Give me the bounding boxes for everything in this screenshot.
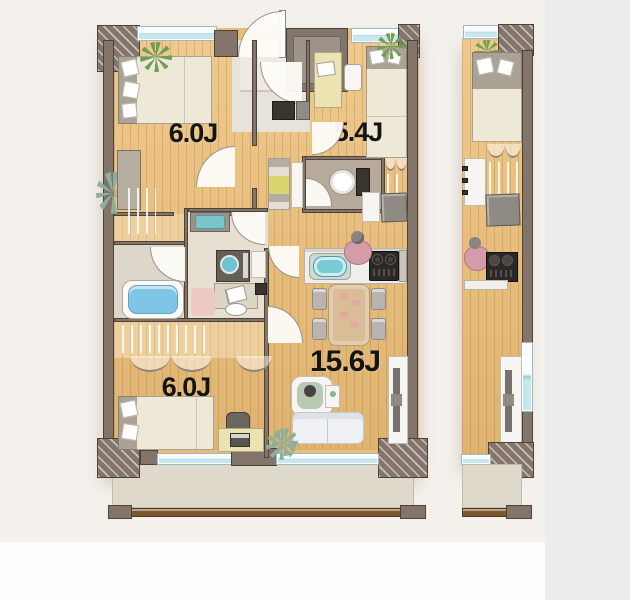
stove-burner-2 [386,255,395,264]
closet-hangers-upper [128,188,156,234]
bed-bedroom3 [137,396,214,450]
outer-wall-left [103,40,114,445]
closet-hangers-bedroom3 [122,325,210,353]
adjacent-tv-stand [503,394,514,406]
entrance-cabinet [296,101,310,120]
kitchen-sink [313,256,347,277]
dining-chair-1 [312,288,327,310]
dining-chair-4 [371,318,386,340]
adjacent-closet-hangers [489,162,519,196]
bed3-pillow-1 [120,400,139,419]
entrance-door-swing [238,11,282,57]
wall-bedroom1-hall [252,40,257,146]
stool [225,303,247,316]
placemat-3 [340,312,348,318]
adjacent-shelf-mark-2 [462,178,468,183]
plant-bedroom3-icon [266,430,296,460]
balcony-rail-end-right [400,505,426,519]
pink-mat [191,288,215,316]
adjacent-shelf-mark-3 [462,190,468,195]
adjacent-balcony-railing [462,508,508,517]
wall-tv [381,193,408,223]
cup-on-table [330,391,336,397]
adjacent-counter-edge [464,280,508,290]
bathtub [128,285,178,314]
room-label-bedroom1: 6.0J [148,120,238,147]
adjacent-bed [472,89,522,142]
person-in-armchair-head [304,385,316,397]
bed1-fold-line [184,57,185,123]
placemat-2 [351,300,359,306]
adjacent-stove-grill [490,270,512,277]
dining-chair-2 [312,318,327,340]
toilet-bowl [329,169,356,195]
bookshelf [362,192,380,222]
placemat-1 [340,294,348,300]
stove-burner-1 [373,255,382,264]
bed1-pillow-2 [122,81,141,100]
adjacent-pillow-1 [476,57,495,76]
plant-bedroom2-icon [377,33,405,59]
corner-wall-bottom-right [378,438,428,478]
counter-end-panel [399,250,407,282]
adjacent-balcony-floor [462,464,522,508]
background-bottom-strip [0,542,545,600]
adjacent-burner-2 [503,256,512,265]
adjacent-rail-end [506,505,532,519]
hall-storage [291,162,303,208]
dining-chair-3 [371,288,386,310]
outer-wall-right [407,40,418,445]
bed3-fold-line [196,397,197,449]
person-cooking-head [351,231,364,244]
balcony-floor [112,464,414,508]
washing-machine-drum [220,255,239,274]
adjacent-shelf-mark-1 [462,166,468,171]
adjacent-window-balcony [462,455,490,464]
desk-bedroom2 [314,52,342,108]
placemat-4 [351,322,359,328]
bed1-pillow-3 [121,102,137,118]
adjacent-person-head [469,237,481,249]
room-label-ldk: 15.6J [302,347,388,377]
vanity-basin [195,215,225,229]
balcony-railing [130,508,412,517]
living-tv-stand [391,394,402,406]
stove-grill [373,269,395,276]
shoe-cabinet [268,158,290,210]
wall-bottom-seg-left [140,450,158,465]
washing-machine-panel [243,253,248,278]
laundry-basket [251,251,266,278]
adjacent-wall-tv [485,193,520,226]
window-top-bedroom1 [138,27,216,40]
bed3-pillow-2 [121,423,139,441]
balcony-rail-end-left [108,505,132,519]
laptop-bedroom2 [316,61,336,77]
washroom-bin [255,283,267,295]
background-right-column [545,0,630,600]
sofa-cushion-split [327,419,328,443]
sofa [292,412,364,444]
dining-table [328,284,370,346]
entrance-appliance [272,101,295,120]
adjacent-window-right [522,343,532,411]
wall-entrance-left-jamb [214,30,238,57]
floor-plan-image: { "document": { "kind": "real-estate flo… [0,0,630,600]
sliding-window-living [277,454,378,464]
chair-bedroom2 [344,64,362,91]
adjacent-window-top [464,26,498,38]
wall-bathroom-top [114,241,188,245]
wall-corridor-left [264,248,269,458]
laptop-bedroom3 [230,433,250,447]
adjacent-burner-1 [490,256,499,265]
sliding-window-bedroom3 [158,454,232,464]
plant-bedroom1-icon [140,42,172,72]
